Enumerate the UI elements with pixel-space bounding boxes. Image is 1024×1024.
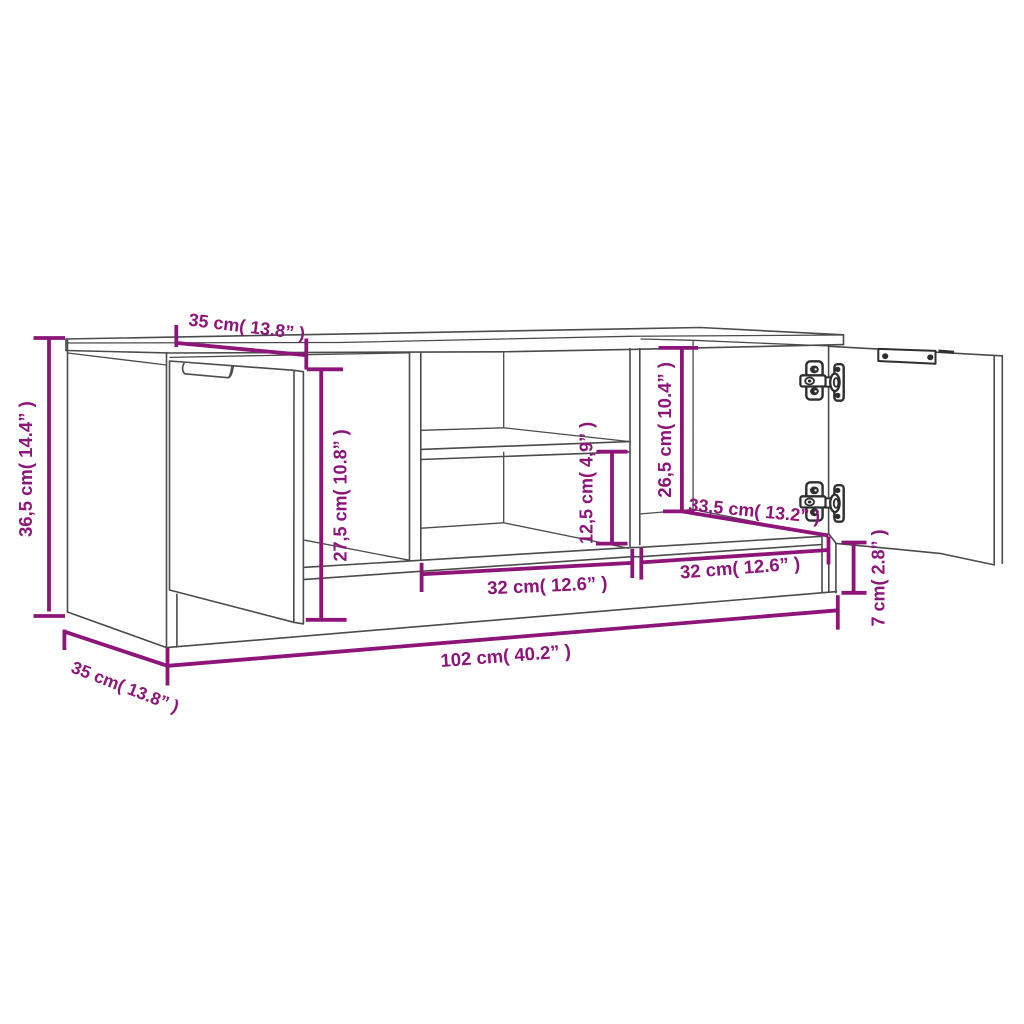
- svg-text:27,5 cm( 10.8” ): 27,5 cm( 10.8” ): [331, 429, 351, 561]
- svg-text:26,5 cm( 10.4” ): 26,5 cm( 10.4” ): [654, 362, 675, 498]
- svg-text:12,5 cm( 4,9” ): 12,5 cm( 4,9” ): [577, 422, 597, 544]
- svg-text:36,5 cm( 14.4” ): 36,5 cm( 14.4” ): [15, 401, 36, 537]
- svg-text:7 cm( 2.8” ): 7 cm( 2.8” ): [869, 529, 889, 626]
